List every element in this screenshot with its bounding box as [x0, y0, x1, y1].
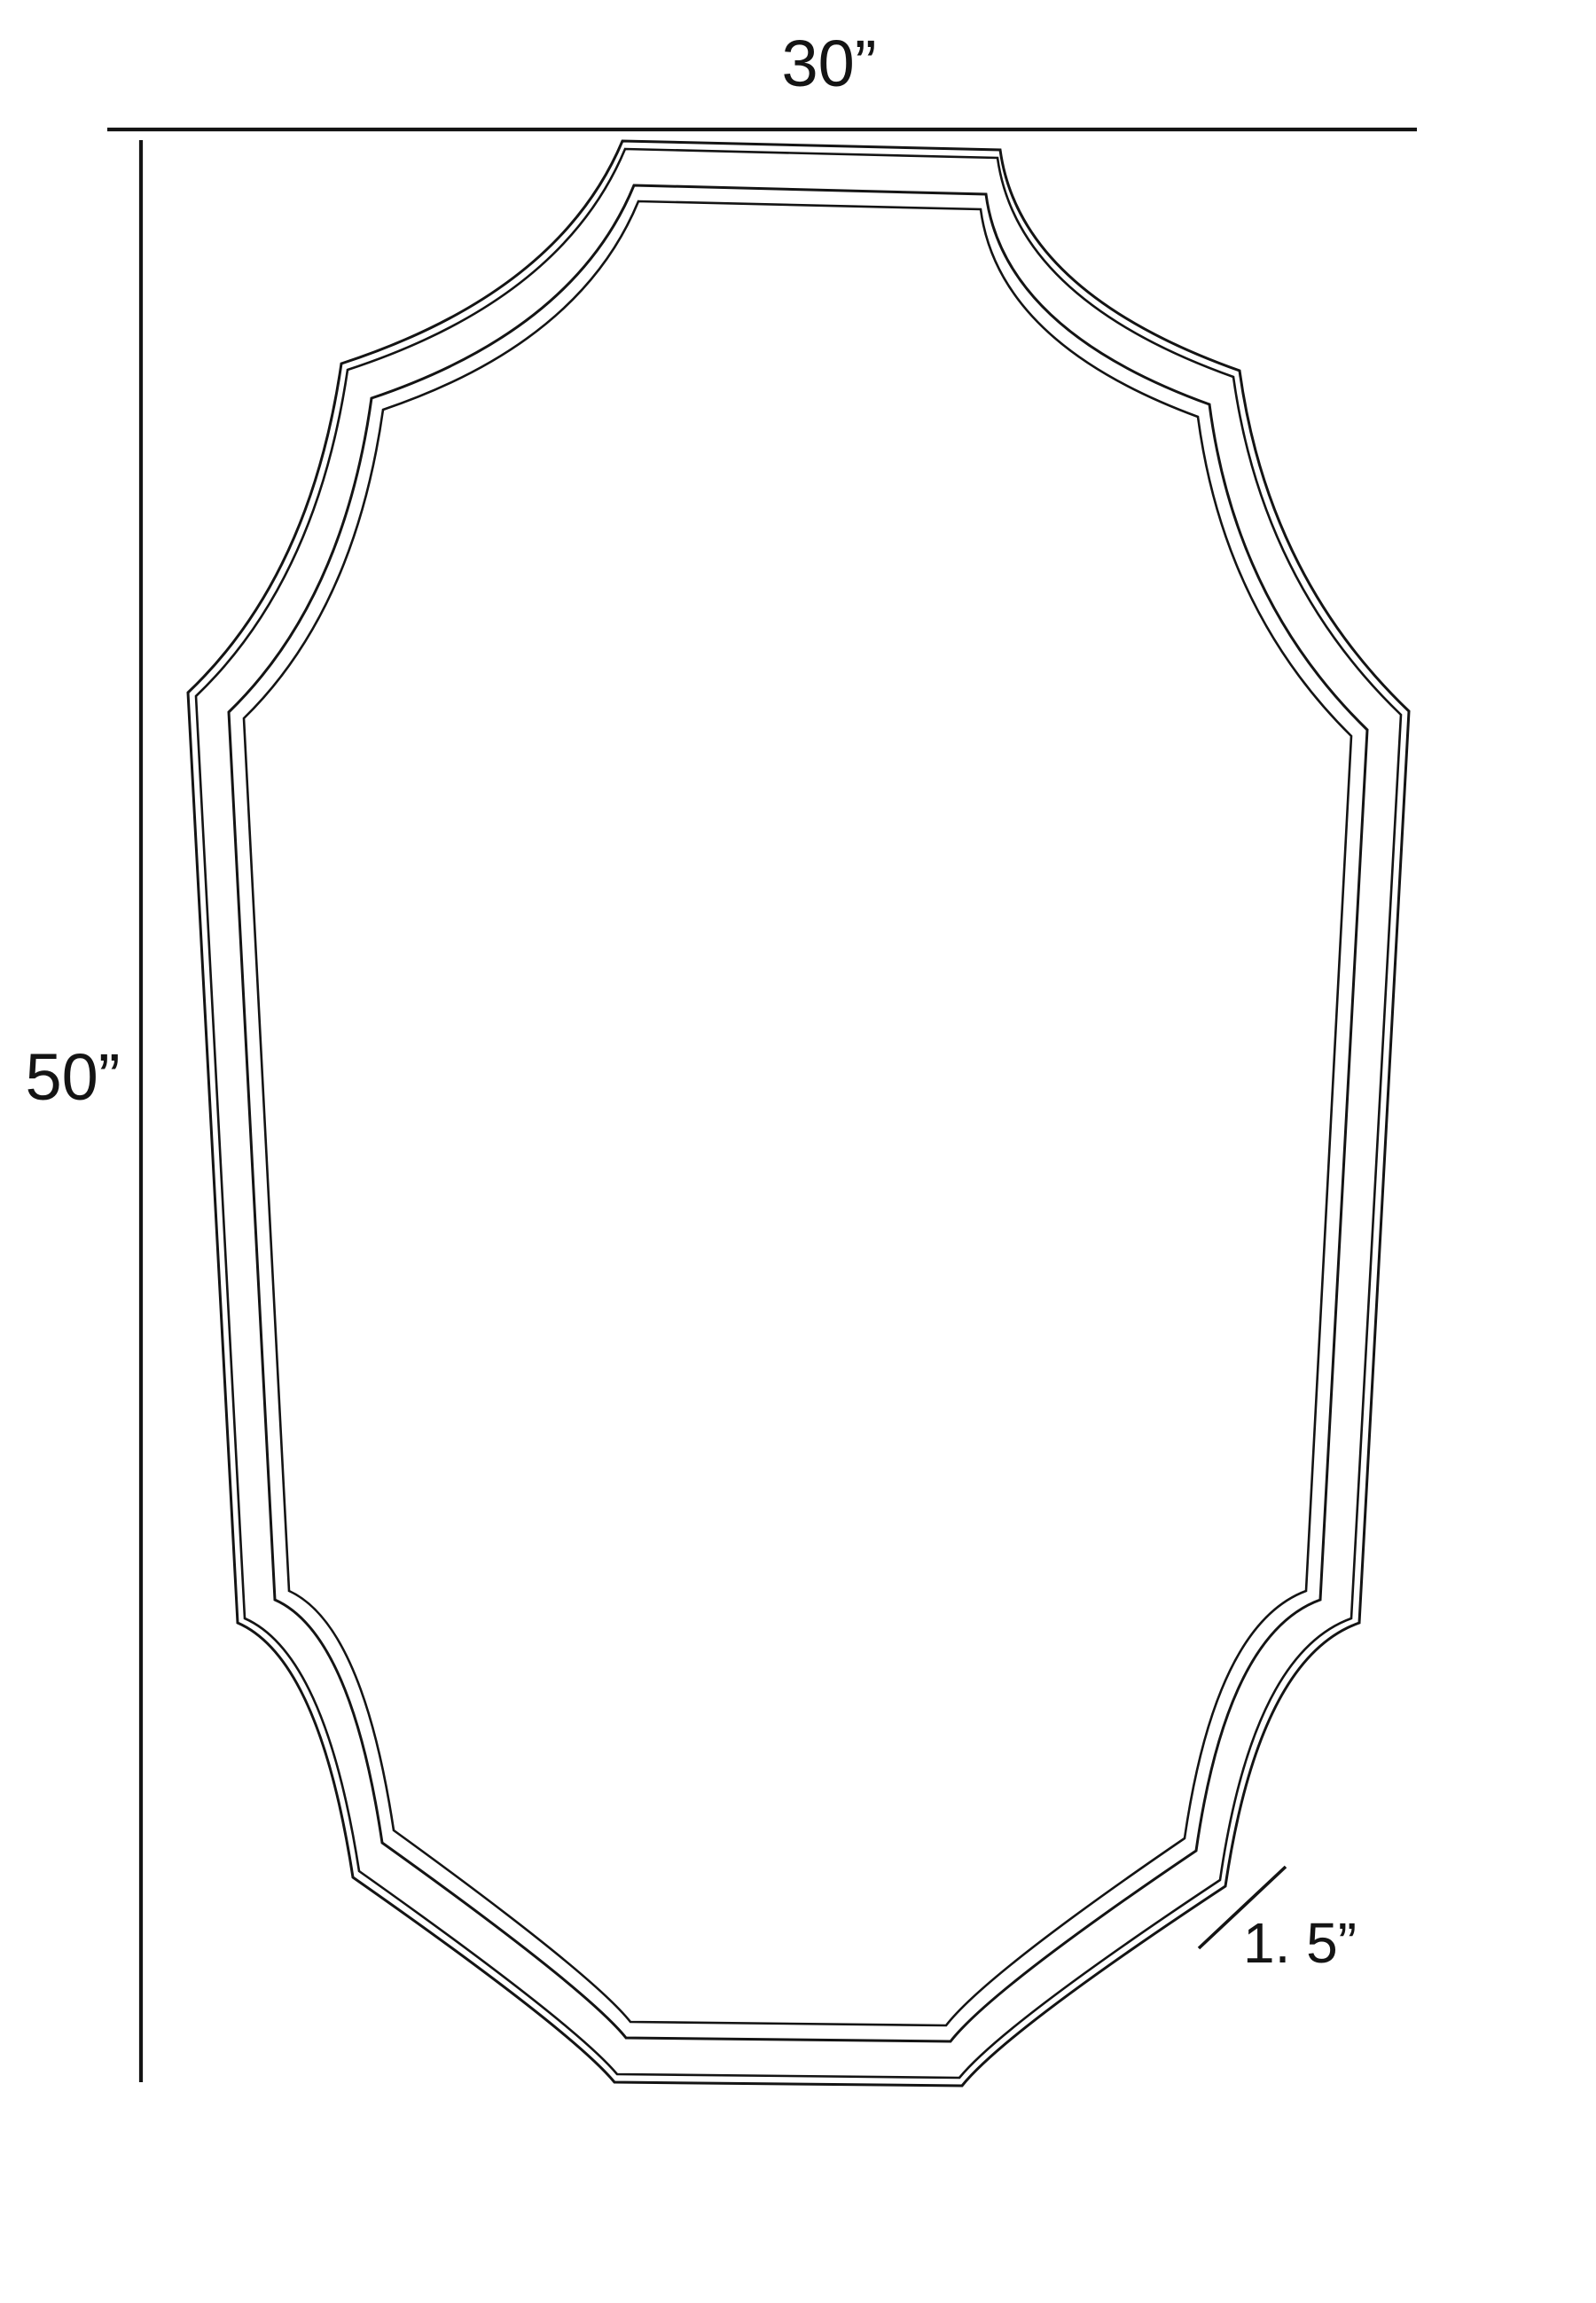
mirror-inner-outline — [229, 185, 1367, 2041]
diagram-drawing: 30” 50” 1. 5” — [0, 0, 1596, 2303]
mirror-outer-outline — [188, 141, 1409, 2086]
mirror-innermost-outline — [244, 201, 1351, 2025]
mirror-dimension-diagram: 30” 50” 1. 5” — [0, 0, 1596, 2303]
depth-dimension-label: 1. 5” — [1243, 1911, 1357, 1975]
height-dimension-label: 50” — [26, 1040, 121, 1114]
mirror-bevel-outline — [196, 149, 1401, 2078]
width-dimension-label: 30” — [782, 27, 877, 100]
